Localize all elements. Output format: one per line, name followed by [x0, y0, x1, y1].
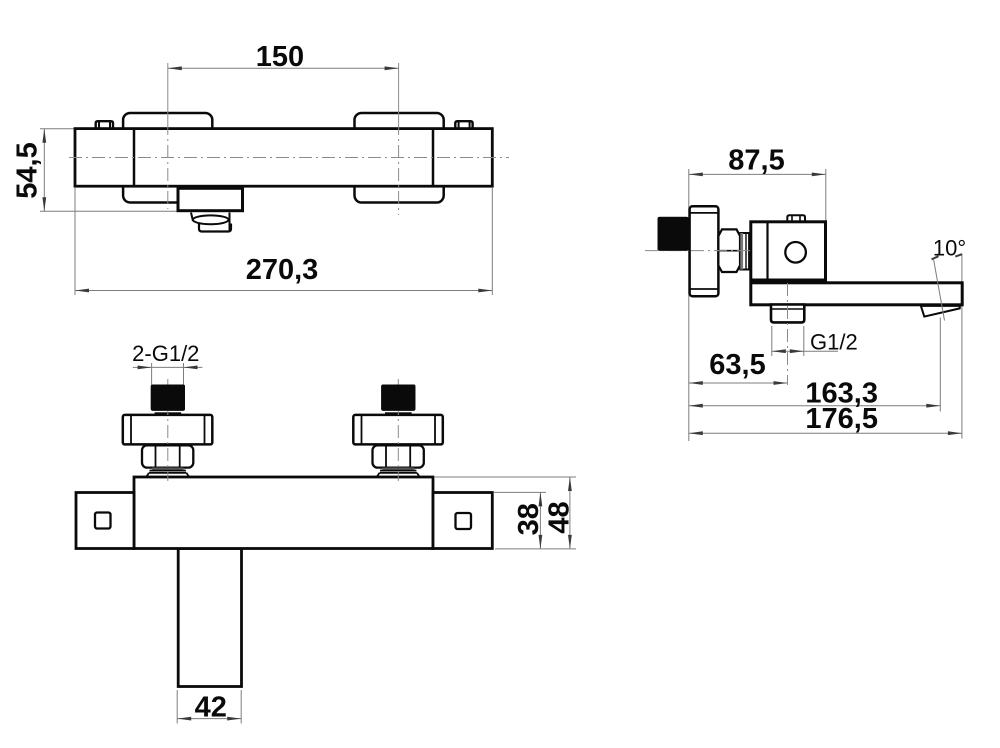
svg-text:G1/2: G1/2 — [810, 330, 858, 355]
svg-text:42: 42 — [195, 692, 227, 724]
svg-text:2-G1/2: 2-G1/2 — [132, 341, 199, 366]
svg-text:48: 48 — [543, 501, 575, 533]
svg-text:176,5: 176,5 — [805, 403, 878, 435]
svg-text:270,3: 270,3 — [246, 254, 319, 286]
svg-text:54,5: 54,5 — [12, 142, 44, 198]
svg-text:150: 150 — [256, 41, 304, 73]
svg-text:38: 38 — [513, 503, 545, 535]
svg-text:87,5: 87,5 — [728, 145, 784, 177]
svg-text:63,5: 63,5 — [709, 349, 765, 381]
